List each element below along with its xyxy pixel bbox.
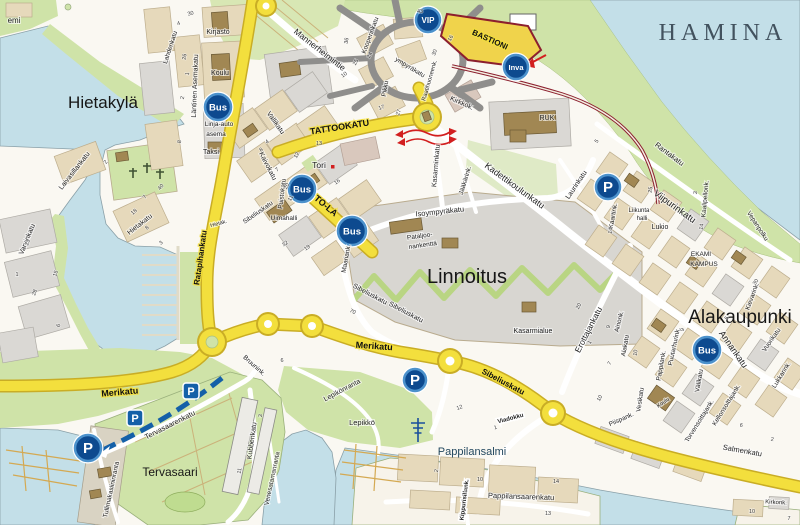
label-kampus: KAMPUS	[690, 261, 718, 268]
label-10: 10	[633, 349, 640, 356]
p-square-label: P	[131, 413, 138, 425]
p-square-marker[interactable]: P	[127, 410, 143, 426]
label-lukio: Lukio	[652, 224, 669, 231]
label-hietakylä: Hietakylä	[68, 93, 138, 112]
label-asema: asema	[206, 131, 226, 138]
label-tori: Tori	[312, 160, 326, 170]
label-kirjasto: Kirjasto	[206, 29, 229, 36]
label-36: 36	[344, 37, 351, 44]
label-25: 25	[648, 186, 655, 193]
p-circle-marker[interactable]: P	[402, 367, 429, 394]
label-halli: halli	[637, 216, 648, 222]
map-canvas: BusBusBusBusVIPInvaPPPPP HAMINAHietakylä…	[0, 0, 800, 525]
label-alakaupunki: Alakaupunki	[688, 307, 792, 328]
inva-marker[interactable]: Inva	[502, 53, 531, 82]
label-13: 13	[545, 511, 551, 517]
bus-label: Bus	[209, 103, 227, 114]
label-linnoitus: Linnoitus	[427, 266, 507, 288]
bus-label: Bus	[698, 346, 716, 357]
label-kirkonk: Kirkonk.	[765, 499, 787, 506]
label-tervasaari: Tervasaari	[142, 465, 197, 479]
tori-monument	[331, 165, 335, 169]
label-ruk: RUK	[540, 115, 555, 122]
bus-marker[interactable]: Bus	[692, 335, 723, 366]
pond	[165, 492, 205, 512]
label-10: 10	[749, 509, 755, 515]
label-taksi: Taksi	[203, 149, 219, 156]
label-1: 1	[464, 488, 467, 494]
label-6: 6	[280, 358, 283, 364]
label-10: 10	[477, 477, 483, 483]
bus-label: Bus	[293, 185, 311, 196]
bus-marker[interactable]: Bus	[203, 92, 234, 123]
label-lepikkö: Lepikkö	[349, 418, 375, 427]
bus-marker[interactable]: Bus	[336, 215, 369, 248]
label-14: 14	[608, 227, 615, 234]
label-kasarmialue: Kasarmialue	[514, 328, 553, 335]
label-linja-auto: Linja-auto	[205, 121, 234, 128]
label-43: 43	[417, 9, 423, 15]
small-island	[65, 4, 71, 10]
label-7: 7	[787, 516, 790, 522]
p-circle-marker[interactable]: P	[594, 173, 623, 202]
p-circle-label: P	[410, 372, 420, 389]
p-circle-label: P	[83, 440, 93, 457]
label-ekami: EKAMI	[691, 251, 711, 258]
p-square-marker[interactable]: P	[183, 383, 199, 399]
p-circle-marker[interactable]: P	[73, 433, 104, 464]
label-koulu: Koulu	[211, 70, 229, 77]
label-14: 14	[553, 479, 559, 485]
label-emi: emi	[8, 16, 21, 25]
inva-label: Inva	[508, 63, 524, 72]
label-hamina: HAMINA	[659, 20, 788, 46]
label-14: 14	[699, 223, 706, 230]
vip-label: VIP	[422, 16, 436, 25]
label-liikunta: Liikunta	[629, 208, 650, 214]
p-circle-label: P	[603, 179, 613, 196]
bus-label: Bus	[343, 227, 361, 238]
label-1: 1	[15, 272, 18, 278]
label-uimahalli: Uimahalli	[271, 215, 298, 222]
p-square-label: P	[187, 386, 194, 398]
label-13: 13	[316, 141, 322, 147]
label-26: 26	[182, 53, 189, 60]
label-11: 11	[237, 467, 244, 474]
label-pappilansalmi: Pappilansalmi	[438, 446, 506, 458]
